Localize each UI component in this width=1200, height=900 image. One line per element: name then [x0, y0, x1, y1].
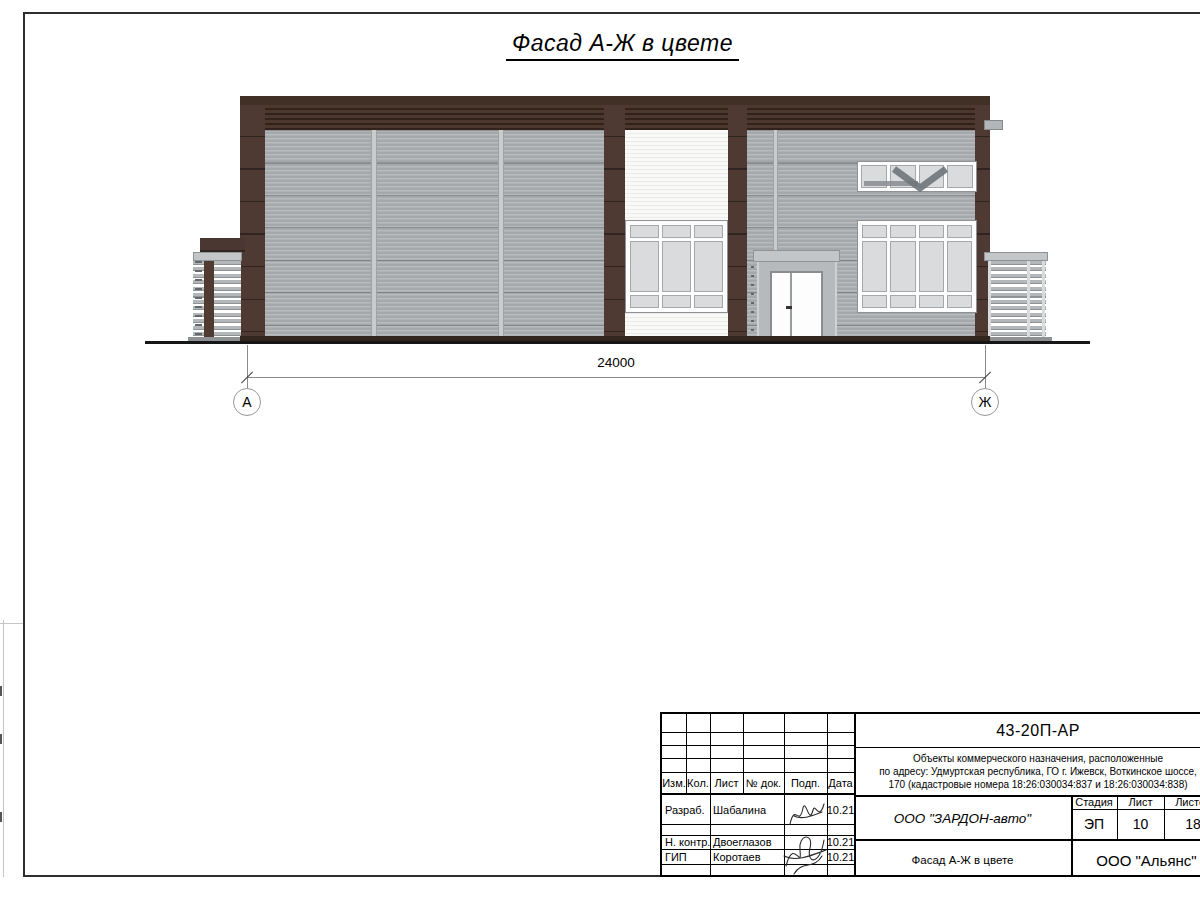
margin-label-mark	[0, 686, 2, 696]
window-glass	[694, 225, 723, 238]
right-fence-rail	[988, 261, 991, 338]
left-fence-brackets	[195, 261, 202, 338]
facade-column	[728, 105, 747, 341]
facade-column	[604, 105, 625, 341]
signature	[780, 826, 828, 878]
stamp-line	[662, 732, 854, 733]
stamp-line	[662, 758, 854, 759]
window-glass	[630, 295, 659, 308]
stamp-sheet-title: Фасад А-Ж в цвете	[854, 841, 1071, 879]
left-fence-cap	[193, 252, 242, 261]
window-glass	[694, 295, 723, 308]
axis-marker-zh: Ж	[971, 388, 999, 416]
stamp-col-list: Лист	[710, 772, 743, 793]
stamp-sheets-total-value: 18	[1164, 809, 1200, 839]
window-right	[857, 220, 977, 313]
window-glass	[694, 241, 723, 292]
axis-marker-a-label: А	[242, 394, 251, 410]
stamp-sheets-total-header: Листов	[1164, 795, 1200, 809]
window-glass	[947, 241, 972, 292]
stamp-date: 10.21	[827, 795, 854, 824]
window-glass	[919, 225, 944, 238]
right-fence-rail	[1027, 261, 1030, 338]
window-glass	[862, 295, 887, 308]
dimension-extension-line	[247, 345, 248, 390]
panel-joint	[773, 130, 778, 250]
door-leaf-divider	[790, 273, 792, 337]
stamp-col-izm: Изм.	[662, 772, 686, 793]
ground-line	[145, 341, 1090, 344]
panel-joint	[498, 130, 504, 337]
entrance-canopy	[753, 250, 840, 262]
right-fence-cap	[984, 252, 1048, 261]
window-glass	[919, 241, 944, 292]
window-glass	[890, 225, 915, 238]
window-strip	[857, 161, 977, 192]
stamp-col-data: Дата	[827, 772, 854, 793]
window-glass	[947, 225, 972, 238]
window-glass	[890, 241, 915, 292]
stamp-role-gip: ГИП	[662, 849, 713, 864]
description-line: 170 (кадастровые номера 18:26:030034:837…	[888, 778, 1187, 791]
window-glass	[662, 295, 691, 308]
left-fence-post	[204, 261, 214, 341]
window-glass	[662, 225, 691, 238]
stamp-company: ООО "ЗАРДОН-авто"	[854, 797, 1071, 839]
stamp-col-kol: Кол.	[686, 772, 710, 793]
dimension-extension-line	[985, 345, 986, 390]
stamp-contractor: ООО "Альянс"	[1071, 841, 1200, 879]
dimension-line	[247, 377, 985, 378]
window-glass	[662, 241, 691, 292]
legend: - Стены: сэндвич-панели, цоколь: отлив; …	[0, 700, 640, 860]
window-glass	[630, 225, 659, 238]
right-fence-rail	[1042, 261, 1045, 338]
stamp-stage-header: Стадия	[1071, 795, 1117, 809]
stamp-line	[662, 745, 854, 746]
description-line: по адресу: Удмуртская республика, ГО г. …	[879, 765, 1197, 778]
window-glass	[947, 295, 972, 308]
margin-divider-line	[0, 623, 23, 624]
stamp-doc-number: 43-20П-АР	[854, 714, 1200, 747]
window-glass	[890, 295, 915, 308]
window-glass	[862, 225, 887, 238]
drawing-sheet: Фасад А-Ж в цвете	[0, 0, 1200, 900]
flashing-cap	[984, 120, 1003, 130]
axis-marker-a: А	[233, 388, 261, 416]
panel-joint	[371, 130, 377, 337]
stamp-sheet-value: 10	[1117, 809, 1164, 839]
window-glass	[919, 295, 944, 308]
stamp-project-description: Объекты коммерческого назначения, распол…	[854, 747, 1200, 795]
facade-wall-left	[265, 130, 604, 337]
dimension-label: 24000	[566, 355, 666, 370]
stamp-sheet-header: Лист	[1117, 795, 1164, 809]
stamp-date: 10.21	[827, 835, 854, 849]
description-line: Объекты коммерческого назначения, распол…	[913, 752, 1163, 765]
window-glass	[862, 241, 887, 292]
stamp-name-dvoeglazov: Двоеглазов	[710, 835, 787, 849]
door-handle	[786, 306, 792, 309]
stamp-role-nkontr: Н. контр.	[662, 835, 713, 849]
stamp-stage-value: ЭП	[1071, 809, 1117, 839]
axis-marker-zh-label: Ж	[979, 394, 992, 410]
title-block: Изм. Кол. Лист № док. Подп. Дата Разраб.…	[660, 712, 1200, 877]
facade-drawing: 24000 А Ж	[0, 0, 1200, 450]
entrance-door	[770, 271, 823, 339]
window-center	[625, 220, 728, 313]
entrance-hinge-ticks	[751, 266, 754, 338]
right-fence-louvers	[988, 261, 1046, 338]
stamp-col-podp: Подп.	[784, 772, 827, 793]
left-fence-beam	[200, 238, 245, 252]
stamp-role-razrab: Разраб.	[662, 795, 713, 824]
stamp-name-shabalina: Шабалина	[710, 795, 787, 824]
facade-column	[240, 105, 265, 341]
stamp-col-ndok: № док.	[743, 772, 784, 793]
window-glass	[630, 241, 659, 292]
stamp-name-korotaev: Коротаев	[710, 849, 787, 864]
window-reflection	[858, 162, 978, 193]
stamp-date: 10.21	[827, 849, 854, 864]
